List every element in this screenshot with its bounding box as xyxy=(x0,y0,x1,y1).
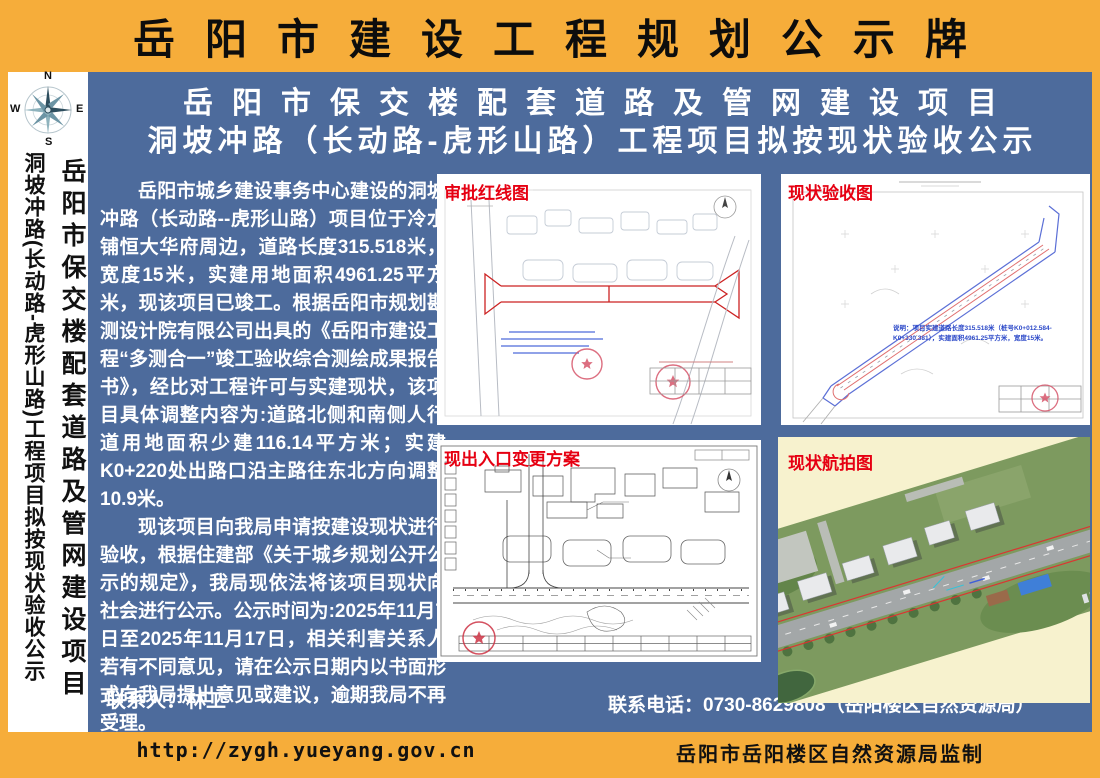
sidebar-project-name: 岳阳市保交楼配套道路及管网建设项目 xyxy=(54,158,90,702)
acceptance-drawing-note: 说明：项目实建道路长度315.518米（桩号K0+012.584-K0+330.… xyxy=(893,324,1075,345)
footer-credit: 岳阳市岳阳楼区自然资源局监制 xyxy=(620,738,1040,767)
compass-rose-icon: N E S W xyxy=(8,72,88,152)
current-acceptance-drawing xyxy=(781,174,1090,425)
board-title: 岳阳市建设工程规划公示牌 xyxy=(0,0,1100,72)
contact-person: 联系人：林工 xyxy=(106,684,226,713)
sidebar: N E S W 岳阳市保交楼配套道路及管网建设项目 洞坡冲路(长动路-虎形山路)… xyxy=(8,72,88,732)
sidebar-notice-name: 洞坡冲路(长动路-虎形山路)工程项目拟按现状验收公示 xyxy=(18,152,48,682)
panel-aerial-photo: 现状航拍图 xyxy=(778,437,1090,703)
aerial-photo xyxy=(778,437,1090,703)
entrance-change-drawing xyxy=(437,440,761,662)
compass-east-label: E xyxy=(76,103,83,115)
panel-aerial-photo-label: 现状航拍图 xyxy=(788,449,873,474)
panel-approval-redline-label: 审批红线图 xyxy=(444,179,529,204)
compass-west-label: W xyxy=(10,103,20,115)
main-content: 岳阳市保交楼配套道路及管网建设项目 洞坡冲路（长动路-虎形山路）工程项目拟按现状… xyxy=(88,72,1092,732)
compass-north-label: N xyxy=(44,70,52,82)
approval-redline-drawing xyxy=(437,174,761,425)
panel-entrance-change-plan: 现出入口变更方案 xyxy=(437,440,761,662)
panel-approval-redline-map: 审批红线图 xyxy=(437,174,761,425)
compass-south-label: S xyxy=(45,136,52,148)
footer-url: http://zygh.yueyang.gov.cn xyxy=(66,738,546,762)
notice-board: 岳阳市建设工程规划公示牌 N E S xyxy=(0,0,1100,778)
panel-current-acceptance-label: 现状验收图 xyxy=(788,179,873,204)
notice-title-line2: 洞坡冲路（长动路-虎形山路）工程项目拟按现状验收公示 xyxy=(88,116,1092,160)
paragraph-project-description: 岳阳市城乡建设事务中心建设的洞坡冲路（长动路--虎形山路）项目位于冷水铺恒大华府… xyxy=(100,178,446,514)
panel-entrance-change-label: 现出入口变更方案 xyxy=(444,445,580,470)
notice-body: 岳阳市城乡建设事务中心建设的洞坡冲路（长动路--虎形山路）项目位于冷水铺恒大华府… xyxy=(100,178,446,738)
panel-current-acceptance-map: 现状验收图 说明：项目实建道路长度315.518米（桩号K0+012.584-K… xyxy=(781,174,1090,425)
